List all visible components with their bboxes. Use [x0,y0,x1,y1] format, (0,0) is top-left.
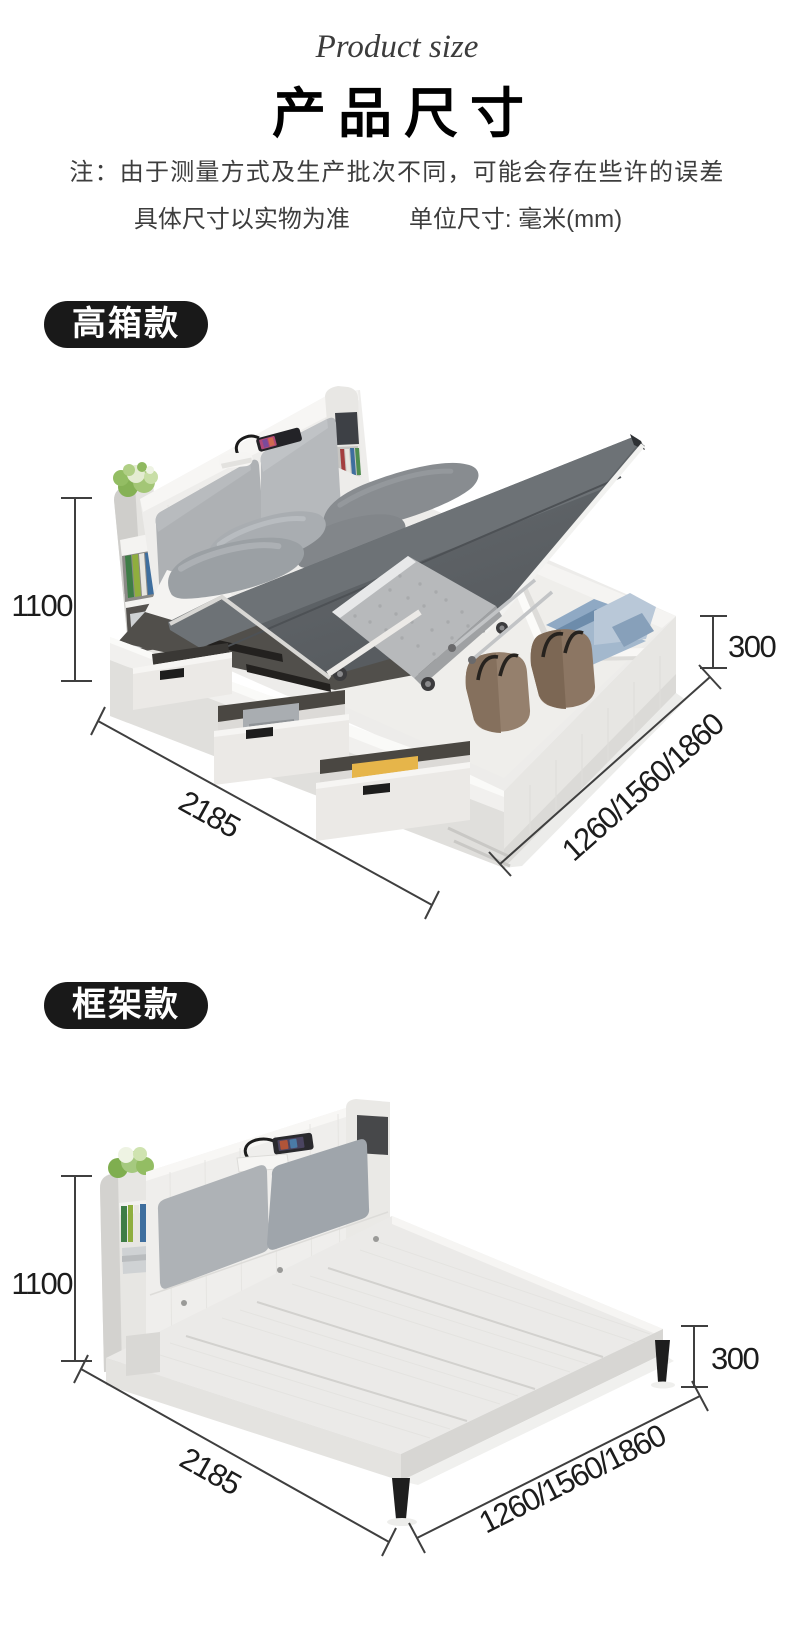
svg-text:2185: 2185 [174,1440,246,1501]
svg-text:2185: 2185 [173,783,245,844]
svg-text:1100: 1100 [11,588,73,623]
svg-text:1100: 1100 [11,1266,73,1301]
svg-text:300: 300 [711,1341,759,1376]
svg-text:300: 300 [728,629,776,664]
